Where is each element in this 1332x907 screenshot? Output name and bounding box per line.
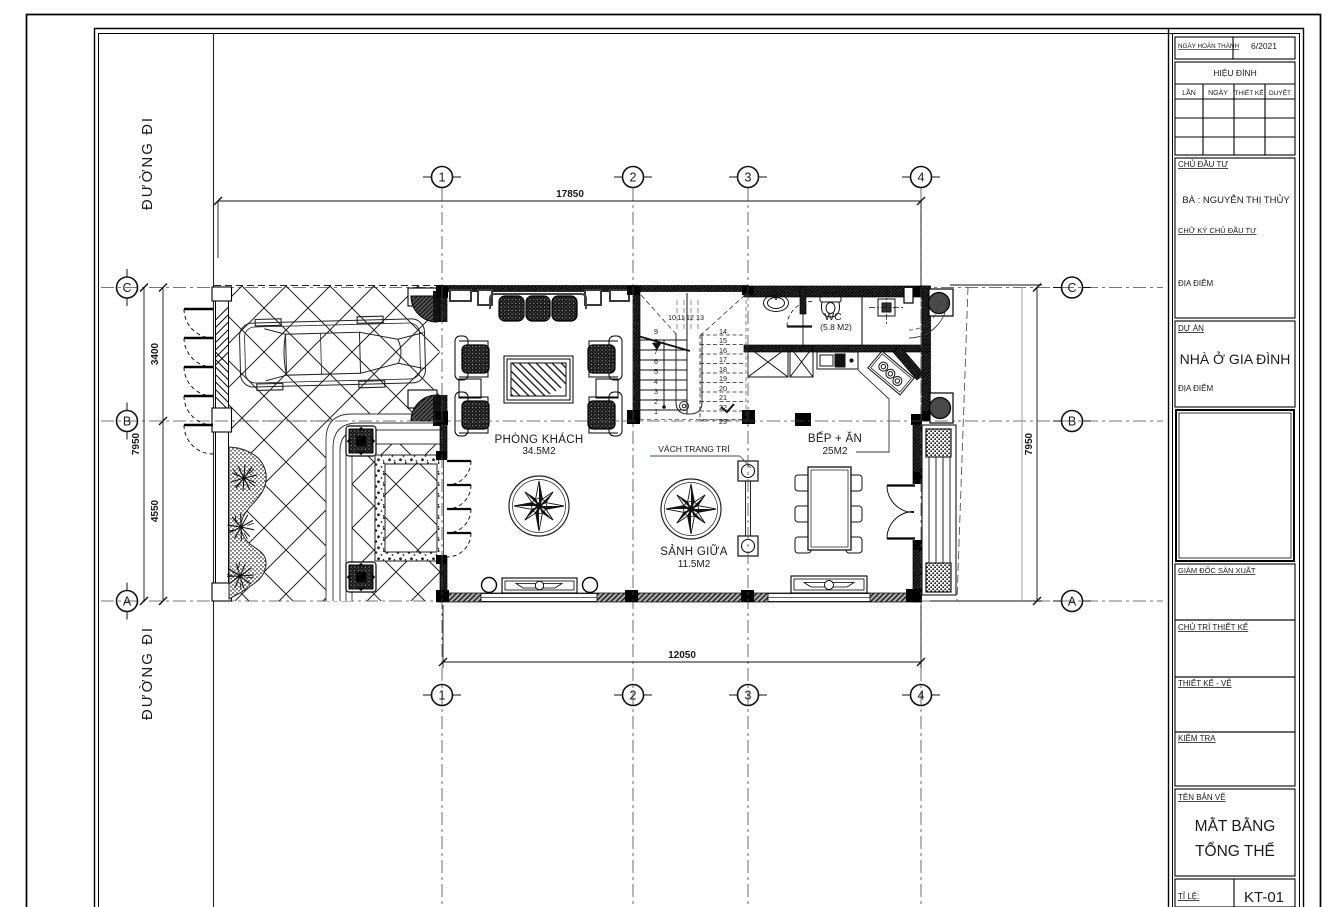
svg-text:17850: 17850 (556, 189, 584, 200)
svg-text:10: 10 (668, 313, 676, 322)
svg-text:PHÒNG KHÁCH: PHÒNG KHÁCH (495, 433, 584, 446)
svg-text:ĐỊA ĐIỂM: ĐỊA ĐIỂM (1178, 279, 1213, 288)
svg-text:11.5M2: 11.5M2 (678, 559, 711, 570)
svg-text:NHÀ Ở GIA ĐÌNH: NHÀ Ở GIA ĐÌNH (1180, 350, 1291, 367)
svg-text:3: 3 (654, 387, 658, 396)
svg-text:DỰ ÁN: DỰ ÁN (1178, 324, 1204, 333)
svg-text:14: 14 (719, 327, 727, 336)
svg-text:3400: 3400 (150, 342, 161, 365)
svg-text:17: 17 (719, 355, 727, 364)
svg-text:20: 20 (719, 384, 727, 393)
svg-text:4: 4 (918, 171, 925, 185)
svg-text:B: B (1068, 415, 1076, 429)
svg-text:1: 1 (439, 171, 446, 185)
svg-text:1: 1 (654, 407, 658, 416)
svg-text:12: 12 (686, 313, 694, 322)
svg-text:CHỦ TRÌ THIẾT KẾ: CHỦ TRÌ THIẾT KẾ (1178, 622, 1248, 632)
svg-text:TỈ LỆ:: TỈ LỆ: (1178, 892, 1199, 901)
svg-text:BẾP + ĂN: BẾP + ĂN (808, 432, 862, 445)
svg-text:CHỮ KÝ CHỦ ĐẦU TƯ: CHỮ KÝ CHỦ ĐẦU TƯ (1178, 225, 1257, 235)
svg-text:VÁCH TRANG TRÍ: VÁCH TRANG TRÍ (658, 444, 730, 454)
svg-text:A: A (123, 595, 132, 609)
svg-text:ĐỊA ĐIỂM: ĐỊA ĐIỂM (1178, 384, 1213, 393)
svg-text:6/2021: 6/2021 (1251, 41, 1277, 51)
svg-text:HIỆU ĐÌNH: HIỆU ĐÌNH (1213, 68, 1256, 78)
svg-text:13: 13 (696, 313, 704, 322)
svg-text:A: A (1068, 595, 1077, 609)
svg-text:NGÀY: NGÀY (1208, 88, 1228, 97)
svg-text:THIẾT KẾ - VẼ: THIẾT KẾ - VẼ (1178, 678, 1232, 688)
svg-text:C: C (122, 281, 131, 295)
svg-text:2: 2 (654, 397, 658, 406)
svg-text:3: 3 (745, 171, 752, 185)
svg-text:C: C (1067, 281, 1076, 295)
svg-text:15: 15 (719, 336, 727, 345)
svg-text:7950: 7950 (1024, 432, 1035, 455)
svg-text:18: 18 (719, 365, 727, 374)
svg-text:BÀ : NGUYỄN THỊ THỦY: BÀ : NGUYỄN THỊ THỦY (1182, 194, 1290, 206)
svg-text:B: B (123, 415, 131, 429)
svg-text:NGÀY HOÀN THÀNH: NGÀY HOÀN THÀNH (1178, 41, 1239, 50)
svg-text:16: 16 (719, 346, 727, 355)
svg-text:DUYỆT: DUYỆT (1269, 88, 1291, 97)
svg-text:4: 4 (654, 377, 658, 386)
svg-text:22: 22 (719, 403, 727, 412)
svg-text:2: 2 (630, 689, 637, 703)
svg-text:LẦN: LẦN (1182, 87, 1196, 97)
svg-text:21: 21 (719, 393, 727, 402)
svg-text:23: 23 (719, 417, 727, 426)
svg-text:4: 4 (918, 689, 925, 703)
svg-text:ĐƯỜNG ĐI: ĐƯỜNG ĐI (139, 626, 156, 720)
svg-text:7950: 7950 (131, 432, 142, 455)
svg-text:(5.8 M2): (5.8 M2) (820, 322, 852, 332)
svg-text:11: 11 (677, 313, 684, 322)
svg-text:ĐƯỜNG ĐI: ĐƯỜNG ĐI (139, 116, 156, 210)
svg-text:5: 5 (654, 367, 658, 376)
svg-text:2: 2 (630, 171, 637, 185)
svg-text:GIÁM ĐỐC SẢN XUẤT: GIÁM ĐỐC SẢN XUẤT (1178, 565, 1256, 575)
svg-text:CHỦ ĐẦU TƯ: CHỦ ĐẦU TƯ (1178, 159, 1228, 169)
svg-text:THIẾT KẾ: THIẾT KẾ (1234, 87, 1264, 97)
svg-text:19: 19 (719, 374, 727, 383)
svg-text:TỔNG THỂ: TỔNG THỂ (1195, 842, 1275, 860)
svg-text:9: 9 (654, 327, 658, 336)
svg-text:SẢNH GIỮA: SẢNH GIỮA (660, 545, 728, 558)
svg-text:KIỂM TRA: KIỂM TRA (1178, 734, 1216, 743)
svg-text:12050: 12050 (668, 650, 696, 661)
svg-text:4550: 4550 (150, 499, 161, 522)
svg-text:3: 3 (745, 689, 752, 703)
svg-text:7: 7 (654, 347, 658, 356)
svg-text:TÊN BẢN VẼ: TÊN BẢN VẼ (1178, 793, 1226, 802)
svg-text:25M2: 25M2 (822, 446, 847, 457)
svg-text:34.5M2: 34.5M2 (522, 446, 556, 457)
svg-text:6: 6 (654, 357, 658, 366)
svg-text:KT-01: KT-01 (1244, 889, 1284, 906)
svg-text:MẰT BẰNG: MẰT BẰNG (1195, 817, 1276, 835)
svg-text:8: 8 (654, 337, 658, 346)
svg-text:1: 1 (439, 689, 446, 703)
